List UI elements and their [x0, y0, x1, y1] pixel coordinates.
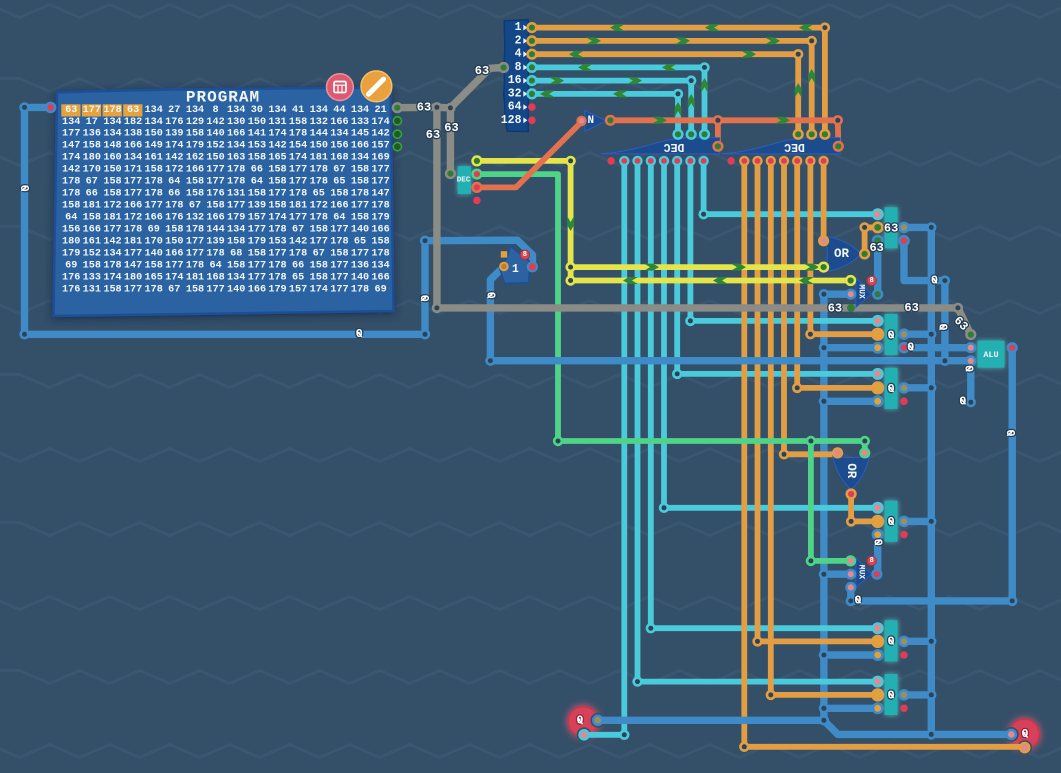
svg-text:163: 163	[227, 153, 245, 164]
svg-text:177: 177	[330, 284, 348, 295]
svg-text:150: 150	[248, 117, 266, 128]
svg-text:178: 178	[165, 201, 183, 212]
svg-text:174: 174	[268, 129, 286, 140]
svg-text:158: 158	[83, 141, 101, 152]
svg-text:177: 177	[227, 201, 245, 212]
svg-text:178: 178	[145, 189, 163, 200]
svg-text:16: 16	[508, 74, 522, 87]
svg-text:158: 158	[248, 189, 266, 200]
svg-text:27: 27	[168, 105, 180, 116]
svg-text:69: 69	[148, 225, 160, 236]
svg-text:67: 67	[189, 201, 201, 212]
svg-text:129: 129	[186, 117, 204, 128]
svg-text:178: 178	[330, 237, 348, 248]
svg-text:178: 178	[310, 177, 328, 188]
svg-text:140: 140	[206, 129, 224, 140]
svg-text:168: 168	[206, 272, 224, 283]
svg-text:158: 158	[351, 165, 369, 176]
svg-text:158: 158	[289, 117, 307, 128]
svg-text:178: 178	[103, 260, 121, 271]
svg-text:66: 66	[292, 260, 304, 271]
svg-text:67: 67	[168, 284, 180, 295]
svg-text:176: 176	[62, 272, 80, 283]
svg-text:179: 179	[248, 237, 266, 248]
svg-text:181: 181	[310, 153, 328, 164]
svg-text:156: 156	[330, 141, 348, 152]
svg-text:OR: OR	[844, 463, 858, 479]
svg-text:DEC: DEC	[664, 140, 685, 153]
svg-text:166: 166	[330, 117, 348, 128]
svg-text:177: 177	[268, 189, 286, 200]
svg-text:158: 158	[371, 237, 389, 248]
svg-text:158: 158	[165, 225, 183, 236]
svg-text:178: 178	[310, 165, 328, 176]
svg-text:158: 158	[248, 248, 266, 259]
svg-text:177: 177	[206, 284, 224, 295]
svg-text:32: 32	[508, 87, 522, 100]
svg-text:177: 177	[248, 225, 266, 236]
svg-text:134: 134	[103, 248, 121, 259]
svg-text:69: 69	[65, 260, 77, 271]
svg-text:133: 133	[83, 272, 101, 283]
svg-text:177: 177	[62, 129, 80, 140]
svg-text:180: 180	[62, 237, 80, 248]
svg-text:166: 166	[248, 284, 266, 295]
svg-text:144: 144	[310, 129, 328, 140]
svg-text:179: 179	[371, 213, 389, 224]
svg-text:165: 165	[145, 272, 163, 283]
svg-text:176: 176	[62, 284, 80, 295]
svg-text:66: 66	[251, 165, 263, 176]
svg-text:8: 8	[515, 61, 522, 74]
svg-text:177: 177	[289, 165, 307, 176]
svg-text:179: 179	[62, 248, 80, 259]
svg-text:152: 152	[83, 248, 101, 259]
svg-text:128: 128	[501, 114, 522, 127]
svg-text:147: 147	[62, 141, 80, 152]
svg-text:134: 134	[103, 129, 121, 140]
svg-text:MUX: MUX	[857, 284, 866, 299]
svg-text:130: 130	[227, 117, 245, 128]
svg-text:178: 178	[371, 201, 389, 212]
svg-text:166: 166	[145, 213, 163, 224]
svg-text:177: 177	[371, 165, 389, 176]
svg-text:177: 177	[371, 177, 389, 188]
svg-text:149: 149	[145, 141, 163, 152]
svg-text:174: 174	[165, 141, 183, 152]
svg-text:178: 178	[310, 213, 328, 224]
svg-text:165: 165	[268, 153, 286, 164]
svg-text:134: 134	[186, 105, 204, 116]
svg-text:131: 131	[268, 117, 286, 128]
svg-text:158: 158	[248, 153, 266, 164]
svg-text:63: 63	[475, 64, 489, 78]
svg-text:1: 1	[515, 21, 522, 34]
svg-text:178: 178	[62, 189, 80, 200]
svg-text:134: 134	[124, 153, 142, 164]
svg-text:177: 177	[124, 189, 142, 200]
svg-text:142: 142	[371, 129, 389, 140]
svg-text:65: 65	[313, 189, 325, 200]
svg-text:181: 181	[124, 237, 142, 248]
svg-text:177: 177	[165, 260, 183, 271]
svg-text:170: 170	[145, 237, 163, 248]
svg-text:178: 178	[227, 177, 245, 188]
svg-text:140: 140	[351, 272, 369, 283]
svg-text:64: 64	[168, 177, 180, 188]
svg-text:67: 67	[313, 248, 325, 259]
svg-text:170: 170	[83, 165, 101, 176]
svg-text:177: 177	[124, 177, 142, 188]
svg-text:64: 64	[333, 213, 345, 224]
svg-text:178: 178	[289, 189, 307, 200]
svg-text:145: 145	[351, 129, 369, 140]
svg-text:158: 158	[310, 272, 328, 283]
svg-text:166: 166	[371, 225, 389, 236]
svg-text:63: 63	[127, 105, 139, 116]
svg-text:177: 177	[330, 260, 348, 271]
svg-text:134: 134	[227, 225, 245, 236]
svg-text:65: 65	[292, 272, 304, 283]
svg-text:30: 30	[251, 105, 263, 116]
svg-text:134: 134	[145, 105, 163, 116]
svg-text:134: 134	[268, 105, 286, 116]
svg-text:176: 176	[206, 189, 224, 200]
svg-text:177: 177	[103, 225, 121, 236]
svg-text:142: 142	[268, 141, 286, 152]
svg-text:64: 64	[65, 213, 77, 224]
svg-text:166: 166	[124, 201, 142, 212]
svg-text:178: 178	[268, 272, 286, 283]
svg-text:150: 150	[103, 165, 121, 176]
svg-text:150: 150	[310, 141, 328, 152]
svg-text:179: 179	[186, 141, 204, 152]
svg-text:63: 63	[904, 301, 918, 315]
svg-text:134: 134	[62, 117, 80, 128]
svg-text:158: 158	[268, 201, 286, 212]
svg-text:152: 152	[206, 141, 224, 152]
svg-text:158: 158	[310, 225, 328, 236]
svg-text:134: 134	[310, 105, 328, 116]
svg-text:158: 158	[186, 189, 204, 200]
svg-text:168: 168	[330, 153, 348, 164]
svg-text:150: 150	[206, 153, 224, 164]
svg-text:178: 178	[371, 248, 389, 259]
svg-text:131: 131	[83, 284, 101, 295]
svg-text:158: 158	[227, 260, 245, 271]
svg-text:181: 181	[103, 213, 121, 224]
svg-text:166: 166	[330, 201, 348, 212]
svg-text:178: 178	[145, 284, 163, 295]
svg-text:177: 177	[289, 177, 307, 188]
svg-text:134: 134	[227, 105, 245, 116]
svg-text:MUX: MUX	[857, 565, 866, 580]
svg-text:67: 67	[333, 165, 345, 176]
svg-text:DEC: DEC	[784, 140, 805, 153]
svg-text:158: 158	[330, 248, 348, 259]
svg-text:134: 134	[103, 117, 121, 128]
svg-text:PROGRAM: PROGRAM	[186, 89, 260, 107]
svg-text:158: 158	[145, 260, 163, 271]
svg-text:157: 157	[289, 284, 307, 295]
svg-text:176: 176	[165, 117, 183, 128]
svg-text:158: 158	[268, 165, 286, 176]
svg-text:181: 181	[289, 201, 307, 212]
svg-text:63: 63	[65, 105, 77, 116]
svg-text:176: 176	[165, 213, 183, 224]
svg-text:158: 158	[227, 237, 245, 248]
svg-text:161: 161	[83, 237, 101, 248]
svg-text:142: 142	[165, 153, 183, 164]
svg-text:17: 17	[86, 117, 98, 128]
svg-text:178: 178	[351, 284, 369, 295]
svg-text:64: 64	[508, 101, 522, 114]
svg-text:8: 8	[870, 277, 874, 285]
svg-text:171: 171	[124, 165, 142, 176]
svg-text:140: 140	[227, 284, 245, 295]
svg-text:65: 65	[354, 237, 366, 248]
svg-text:172: 172	[103, 201, 121, 212]
svg-text:142: 142	[289, 237, 307, 248]
svg-text:144: 144	[206, 225, 224, 236]
svg-text:158: 158	[310, 260, 328, 271]
svg-text:177: 177	[351, 248, 369, 259]
svg-text:174: 174	[268, 213, 286, 224]
svg-text:67: 67	[292, 225, 304, 236]
svg-text:182: 182	[124, 117, 142, 128]
svg-text:166: 166	[124, 141, 142, 152]
svg-text:158: 158	[206, 201, 224, 212]
svg-text:157: 157	[371, 141, 389, 152]
svg-text:65: 65	[333, 177, 345, 188]
svg-text:142: 142	[103, 237, 121, 248]
svg-text:DEC: DEC	[457, 177, 471, 185]
svg-text:178: 178	[227, 165, 245, 176]
svg-text:174: 174	[62, 153, 80, 164]
svg-text:181: 181	[186, 272, 204, 283]
svg-text:177: 177	[124, 248, 142, 259]
svg-text:177: 177	[83, 105, 101, 116]
svg-text:8: 8	[523, 251, 527, 259]
svg-text:68: 68	[230, 248, 242, 259]
svg-text:178: 178	[289, 248, 307, 259]
svg-text:178: 178	[62, 177, 80, 188]
svg-text:177: 177	[206, 177, 224, 188]
svg-text:150: 150	[165, 237, 183, 248]
svg-text:142: 142	[206, 117, 224, 128]
svg-text:177: 177	[145, 201, 163, 212]
svg-text:139: 139	[165, 129, 183, 140]
svg-text:178: 178	[268, 260, 286, 271]
svg-text:OR: OR	[834, 247, 850, 261]
svg-text:161: 161	[145, 153, 163, 164]
svg-text:148: 148	[103, 141, 121, 152]
svg-text:21: 21	[374, 105, 386, 116]
svg-text:66: 66	[168, 189, 180, 200]
svg-text:158: 158	[330, 189, 348, 200]
svg-text:67: 67	[86, 177, 98, 188]
svg-text:134: 134	[227, 141, 245, 152]
svg-text:177: 177	[186, 237, 204, 248]
svg-text:131: 131	[227, 189, 245, 200]
svg-text:160: 160	[103, 153, 121, 164]
svg-text:158: 158	[103, 177, 121, 188]
svg-text:158: 158	[186, 177, 204, 188]
svg-text:177: 177	[351, 201, 369, 212]
svg-text:166: 166	[371, 272, 389, 283]
svg-text:63: 63	[884, 222, 898, 236]
svg-text:63: 63	[869, 241, 883, 255]
svg-text:153: 153	[248, 141, 266, 152]
svg-text:178: 178	[103, 105, 121, 116]
svg-text:174: 174	[165, 272, 183, 283]
svg-text:178: 178	[268, 225, 286, 236]
svg-text:150: 150	[145, 129, 163, 140]
svg-text:4: 4	[515, 48, 522, 61]
svg-text:158: 158	[83, 213, 101, 224]
svg-text:181: 181	[83, 201, 101, 212]
svg-text:63: 63	[426, 128, 440, 142]
svg-text:1: 1	[512, 263, 519, 276]
svg-text:134: 134	[330, 129, 348, 140]
svg-text:177: 177	[186, 248, 204, 259]
svg-text:140: 140	[145, 248, 163, 259]
svg-text:166: 166	[165, 248, 183, 259]
svg-text:41: 41	[292, 105, 304, 116]
svg-text:63: 63	[417, 101, 431, 115]
svg-text:63: 63	[444, 121, 458, 135]
svg-text:174: 174	[310, 284, 328, 295]
svg-text:180: 180	[124, 272, 142, 283]
svg-text:177: 177	[248, 260, 266, 271]
svg-text:ALU: ALU	[983, 350, 998, 360]
svg-text:139: 139	[206, 237, 224, 248]
svg-text:147: 147	[371, 189, 389, 200]
svg-text:166: 166	[186, 165, 204, 176]
svg-text:134: 134	[351, 153, 369, 164]
svg-text:138: 138	[124, 129, 142, 140]
svg-text:178: 178	[351, 189, 369, 200]
svg-text:178: 178	[145, 177, 163, 188]
svg-text:158: 158	[103, 284, 121, 295]
svg-text:162: 162	[186, 153, 204, 164]
svg-text:2: 2	[515, 34, 522, 47]
svg-text:166: 166	[227, 129, 245, 140]
svg-text:8: 8	[213, 105, 219, 116]
svg-text:177: 177	[124, 284, 142, 295]
svg-text:179: 179	[227, 213, 245, 224]
svg-text:156: 156	[62, 225, 80, 236]
svg-text:134: 134	[371, 260, 389, 271]
svg-text:177: 177	[268, 248, 286, 259]
svg-text:178: 178	[206, 248, 224, 259]
svg-text:133: 133	[351, 117, 369, 128]
svg-text:66: 66	[86, 189, 98, 200]
svg-text:158: 158	[351, 177, 369, 188]
svg-text:134: 134	[227, 272, 245, 283]
svg-text:158: 158	[186, 129, 204, 140]
svg-text:177: 177	[330, 225, 348, 236]
svg-text:8: 8	[870, 557, 874, 565]
svg-text:178: 178	[124, 225, 142, 236]
svg-text:177: 177	[330, 272, 348, 283]
svg-text:158: 158	[83, 260, 101, 271]
svg-text:158: 158	[186, 284, 204, 295]
svg-text:157: 157	[248, 213, 266, 224]
svg-text:142: 142	[62, 165, 80, 176]
svg-text:64: 64	[209, 260, 221, 271]
svg-text:174: 174	[103, 272, 121, 283]
svg-text:174: 174	[371, 117, 389, 128]
svg-text:134: 134	[351, 105, 369, 116]
svg-text:140: 140	[351, 225, 369, 236]
svg-text:64: 64	[251, 177, 263, 188]
svg-text:153: 153	[268, 237, 286, 248]
svg-text:158: 158	[62, 201, 80, 212]
svg-text:N: N	[587, 115, 594, 127]
svg-text:177: 177	[206, 165, 224, 176]
svg-text:158: 158	[103, 189, 121, 200]
svg-text:158: 158	[145, 165, 163, 176]
svg-text:132: 132	[310, 117, 328, 128]
svg-text:178: 178	[186, 225, 204, 236]
svg-text:172: 172	[310, 201, 328, 212]
svg-text:178: 178	[289, 129, 307, 140]
svg-text:174: 174	[289, 153, 307, 164]
svg-text:179: 179	[268, 284, 286, 295]
svg-text:177: 177	[289, 213, 307, 224]
svg-text:178: 178	[186, 260, 204, 271]
svg-text:158: 158	[351, 213, 369, 224]
svg-text:139: 139	[248, 201, 266, 212]
svg-text:180: 180	[83, 153, 101, 164]
svg-text:154: 154	[289, 141, 307, 152]
svg-text:134: 134	[145, 117, 163, 128]
svg-text:136: 136	[351, 260, 369, 271]
svg-text:172: 172	[124, 213, 142, 224]
svg-text:141: 141	[248, 129, 266, 140]
svg-text:177: 177	[310, 237, 328, 248]
svg-text:158: 158	[268, 177, 286, 188]
svg-text:132: 132	[186, 213, 204, 224]
svg-text:166: 166	[83, 225, 101, 236]
svg-text:169: 169	[371, 153, 389, 164]
svg-text:172: 172	[165, 165, 183, 176]
svg-text:166: 166	[351, 141, 369, 152]
svg-text:136: 136	[83, 129, 101, 140]
svg-text:63: 63	[828, 301, 842, 315]
svg-text:44: 44	[333, 105, 345, 116]
svg-text:147: 147	[124, 260, 142, 271]
svg-text:69: 69	[374, 284, 386, 295]
svg-text:166: 166	[206, 213, 224, 224]
svg-text:177: 177	[248, 272, 266, 283]
